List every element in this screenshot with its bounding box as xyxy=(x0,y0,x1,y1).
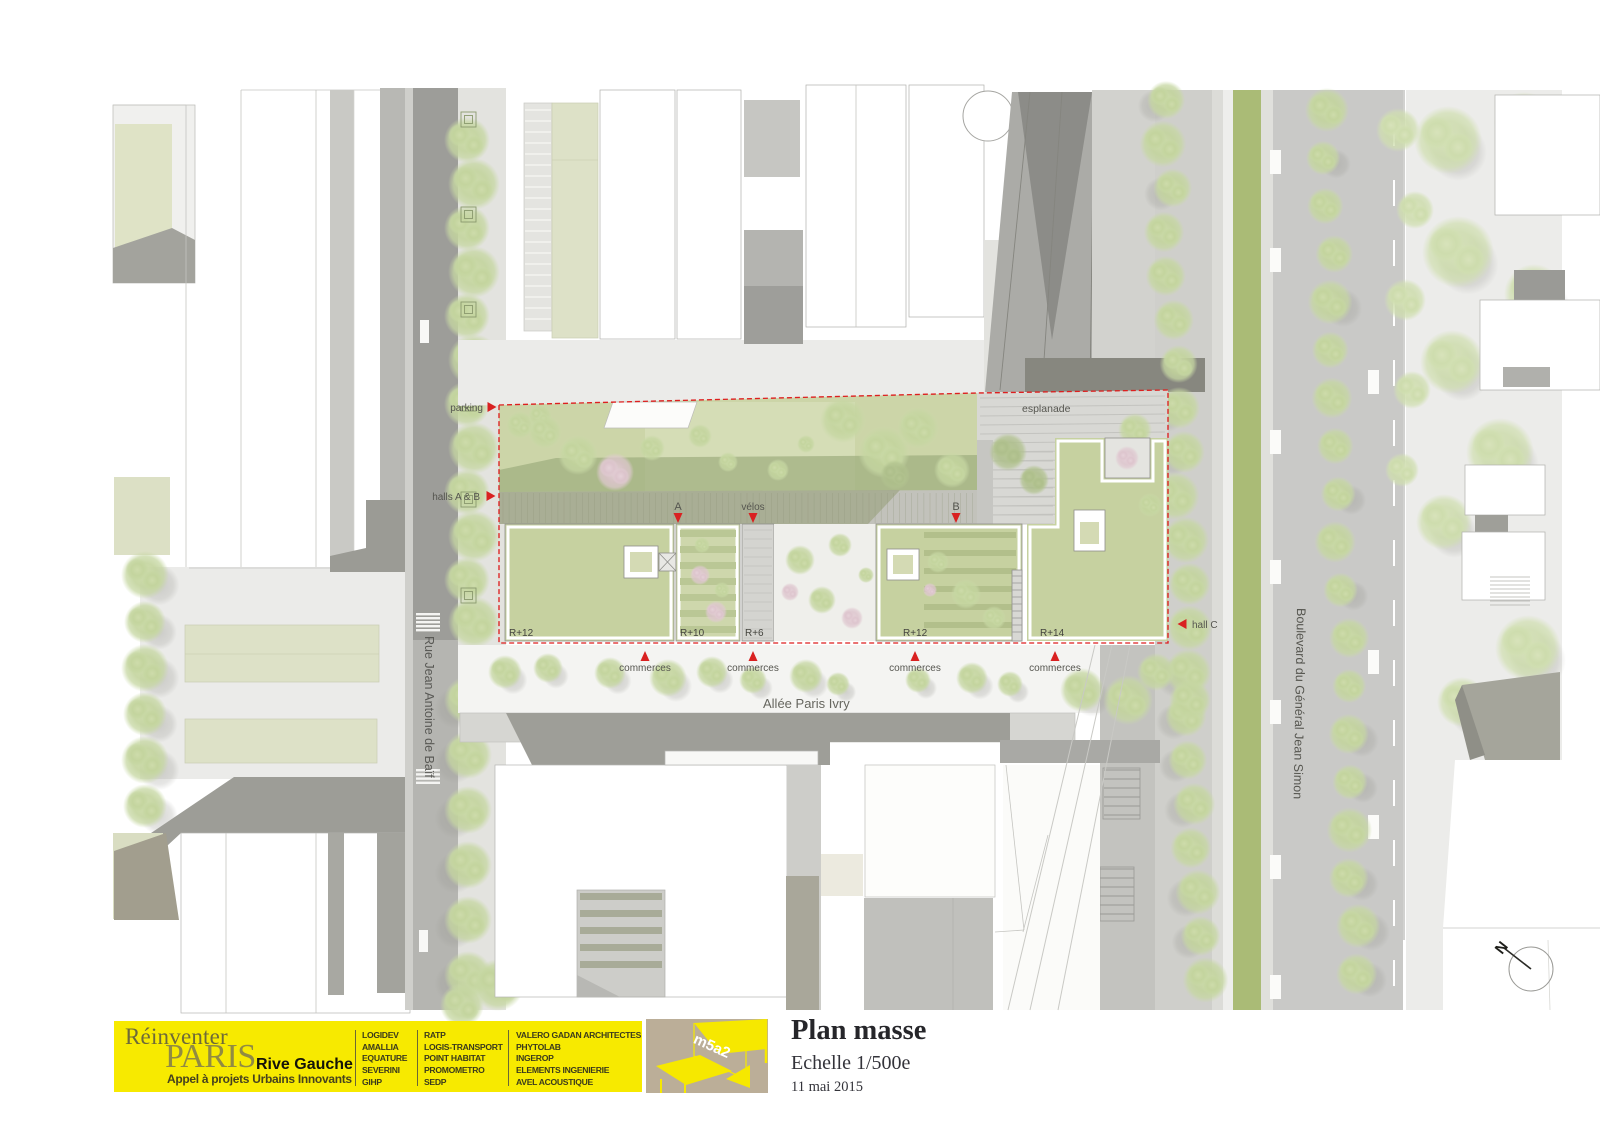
svg-text:A: A xyxy=(674,501,682,513)
svg-text:esplanade: esplanade xyxy=(1022,403,1071,415)
svg-text:Allée Paris Ivry: Allée Paris Ivry xyxy=(763,696,850,711)
svg-text:halls A & B: halls A & B xyxy=(432,492,480,503)
svg-text:commerces: commerces xyxy=(1029,663,1081,674)
svg-text:R+12: R+12 xyxy=(509,628,534,639)
svg-text:R+6: R+6 xyxy=(745,628,764,639)
svg-text:R+14: R+14 xyxy=(1040,628,1065,639)
svg-text:hall C: hall C xyxy=(1192,620,1218,631)
svg-text:R+12: R+12 xyxy=(903,628,928,639)
svg-text:commerces: commerces xyxy=(889,663,941,674)
svg-text:commerces: commerces xyxy=(619,663,671,674)
svg-text:Rue Jean Antoine de Baïf: Rue Jean Antoine de Baïf xyxy=(422,636,436,778)
svg-text:parking: parking xyxy=(450,403,483,414)
svg-text:B: B xyxy=(952,501,959,513)
svg-text:vélos: vélos xyxy=(741,502,764,513)
svg-text:commerces: commerces xyxy=(727,663,779,674)
svg-text:R+10: R+10 xyxy=(680,628,705,639)
